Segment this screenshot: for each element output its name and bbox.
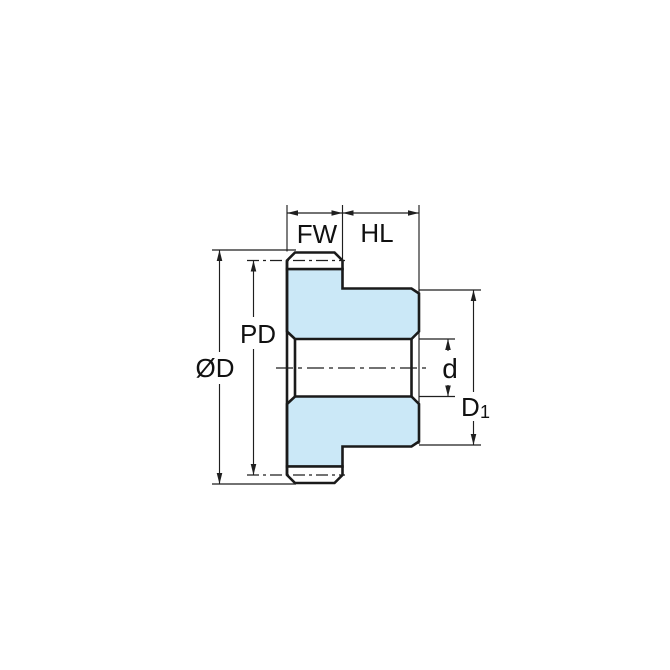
label-hub-diameter: D: [461, 392, 480, 422]
pd-arrow-up: [251, 261, 257, 272]
d-arrow-down: [445, 386, 451, 397]
hl-arrow-left: [343, 210, 354, 216]
canvas: FW HL ØD PD d: [0, 0, 670, 670]
fw-arrow-left: [287, 210, 298, 216]
fw-arrow-right: [332, 210, 343, 216]
label-outside-diameter: ØD: [196, 353, 235, 383]
label-face-width: FW: [297, 219, 338, 249]
od-arrow-down: [217, 473, 223, 484]
gear-body-lower-section: [287, 397, 419, 467]
label-bore-diameter: d: [442, 353, 458, 384]
label-hub-diameter-subscript: 1: [480, 402, 490, 422]
label-hub-length: HL: [360, 218, 393, 248]
dimension-outside-diameter: ØD: [196, 250, 297, 484]
d1-arrow-up: [471, 290, 477, 301]
hl-arrow-right: [408, 210, 419, 216]
gear-diagram: FW HL ØD PD d: [0, 0, 670, 670]
label-pitch-diameter: PD: [240, 319, 276, 349]
d1-arrow-down: [471, 434, 477, 445]
gear-body-upper-section: [287, 269, 419, 339]
d-arrow-up: [445, 339, 451, 350]
od-arrow-up: [217, 250, 223, 261]
dimension-pitch-diameter: PD: [240, 261, 276, 476]
pd-arrow-down: [251, 464, 257, 475]
